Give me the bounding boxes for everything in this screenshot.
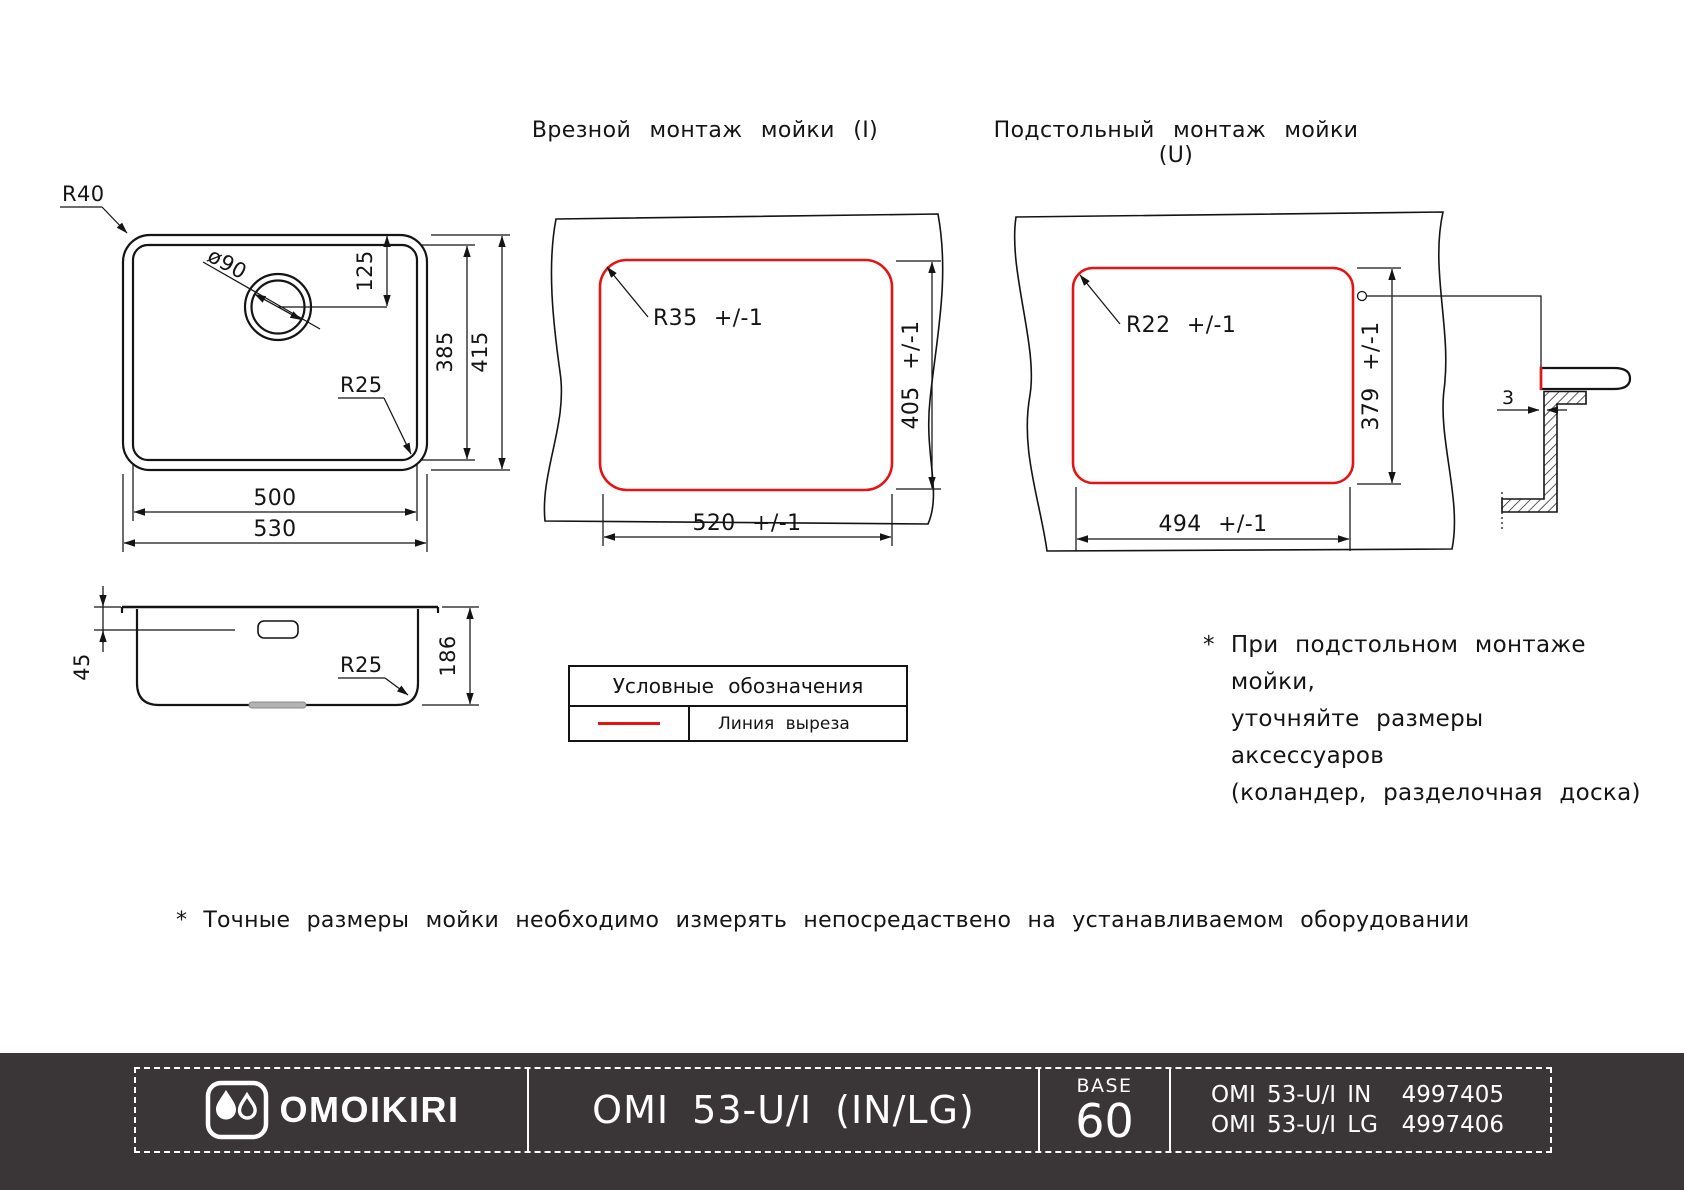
leader-r22 — [1080, 275, 1120, 324]
leader-r35 — [607, 267, 648, 317]
note-line: уточняйте размеры аксессуаров — [1231, 701, 1643, 775]
note-line: (коландер, разделочная доска) — [1231, 775, 1643, 812]
legend-title: Условные обозначения — [570, 667, 906, 707]
detail-connector — [1367, 296, 1542, 368]
title-block: OMOIKIRI OMI 53-U/I (IN/LG) BASE 60 OMI … — [0, 1053, 1684, 1190]
brand-cell: OMOIKIRI — [136, 1069, 527, 1151]
omoikiri-drops-icon — [204, 1079, 270, 1141]
cutout-line-under — [1073, 268, 1353, 483]
legend-swatch-cell — [570, 707, 690, 740]
cutout-line-inset — [600, 260, 892, 490]
countertop-outline — [1015, 212, 1455, 551]
dim-415: 415 — [468, 331, 492, 372]
cut-line-swatch — [598, 722, 660, 725]
drain-boss — [249, 702, 306, 708]
note-line: При подстольном монтаже мойки, — [1231, 627, 1643, 701]
sku-cell: OMI 53-U/I IN 4997405 OMI 53-U/I LG 4997… — [1169, 1069, 1550, 1151]
dim-r35: R35 +/-1 — [653, 306, 763, 331]
asterisk: * — [176, 902, 187, 939]
sink-outer-edge — [123, 235, 427, 470]
base-cell: BASE 60 — [1038, 1069, 1169, 1151]
dim-r22: R22 +/-1 — [1126, 313, 1236, 338]
sku-name: OMI 53-U/I LG — [1211, 1110, 1378, 1140]
legend-cut-line-label: Линия выреза — [690, 707, 906, 740]
dim-500: 500 — [253, 486, 296, 511]
measurement-note: * Точные размеры мойки необходимо измеря… — [176, 902, 1506, 939]
sku-row: OMI 53-U/I IN 4997405 — [1211, 1080, 1504, 1110]
dim-186: 186 — [436, 635, 460, 676]
drawing-sheet: R40 ø90 125 385 415 R25 500 — [0, 0, 1684, 1190]
leader-r25-side — [385, 678, 408, 695]
dim-385: 385 — [433, 331, 457, 372]
undermount-note-lines: При подстольном монтаже мойки, уточняйте… — [1231, 627, 1643, 812]
leader-r25 — [384, 398, 411, 454]
under-mount-title: Подстольный монтаж мойки (U) — [971, 118, 1381, 168]
dim-405: 405 +/-1 — [899, 321, 924, 430]
inset-mount-view: R35 +/-1 405 +/-1 520 +/-1 — [544, 214, 942, 546]
model-cell: OMI 53-U/I (IN/LG) — [527, 1069, 1038, 1151]
dim-r25-side: R25 — [340, 653, 383, 677]
leader-r40 — [102, 207, 127, 233]
sku-name: OMI 53-U/I IN — [1211, 1080, 1371, 1110]
undermount-note: * При подстольном монтаже мойки, уточняй… — [1203, 627, 1643, 812]
legend-row: Линия выреза — [570, 707, 906, 740]
sku-code: 4997405 — [1402, 1080, 1504, 1110]
legend-table: Условные обозначения Линия выреза — [568, 665, 908, 742]
dim-520: 520 +/-1 — [693, 511, 802, 536]
sink-side-view: 45 186 R25 — [70, 586, 479, 708]
sku-code: 4997406 — [1402, 1110, 1504, 1140]
base-value: 60 — [1075, 1097, 1134, 1145]
dim-r40: R40 — [62, 182, 105, 206]
dim-530: 530 — [253, 517, 296, 542]
measurement-note-text: Точные размеры мойки необходимо измерять… — [203, 902, 1469, 939]
inset-mount-title: Врезной монтаж мойки (I) — [500, 118, 910, 143]
sku-row: OMI 53-U/I LG 4997406 — [1211, 1110, 1504, 1140]
detail-callout-circle — [1358, 292, 1367, 301]
dim-379: 379 +/-1 — [1359, 322, 1384, 431]
under-mount-section-detail: 3 — [1497, 367, 1630, 529]
under-mount-view: R22 +/-1 379 +/-1 494 +/-1 — [1015, 212, 1541, 551]
technical-drawing-canvas: R40 ø90 125 385 415 R25 500 — [0, 0, 1684, 1053]
dim-45: 45 — [70, 653, 94, 681]
title-block-table: OMOIKIRI OMI 53-U/I (IN/LG) BASE 60 OMI … — [134, 1067, 1552, 1153]
brand-name: OMOIKIRI — [280, 1089, 460, 1131]
dim-125: 125 — [353, 250, 377, 291]
overflow-hole — [258, 621, 298, 638]
dim-gap-3: 3 — [1502, 387, 1515, 409]
dim-r25-top: R25 — [340, 373, 383, 397]
sink-top-view: R40 ø90 125 385 415 R25 500 — [60, 182, 510, 552]
dim-494: 494 +/-1 — [1159, 512, 1268, 537]
dim-drain-dia: ø90 — [204, 243, 251, 284]
asterisk: * — [1203, 627, 1215, 812]
countertop-slab-section — [1541, 368, 1630, 389]
